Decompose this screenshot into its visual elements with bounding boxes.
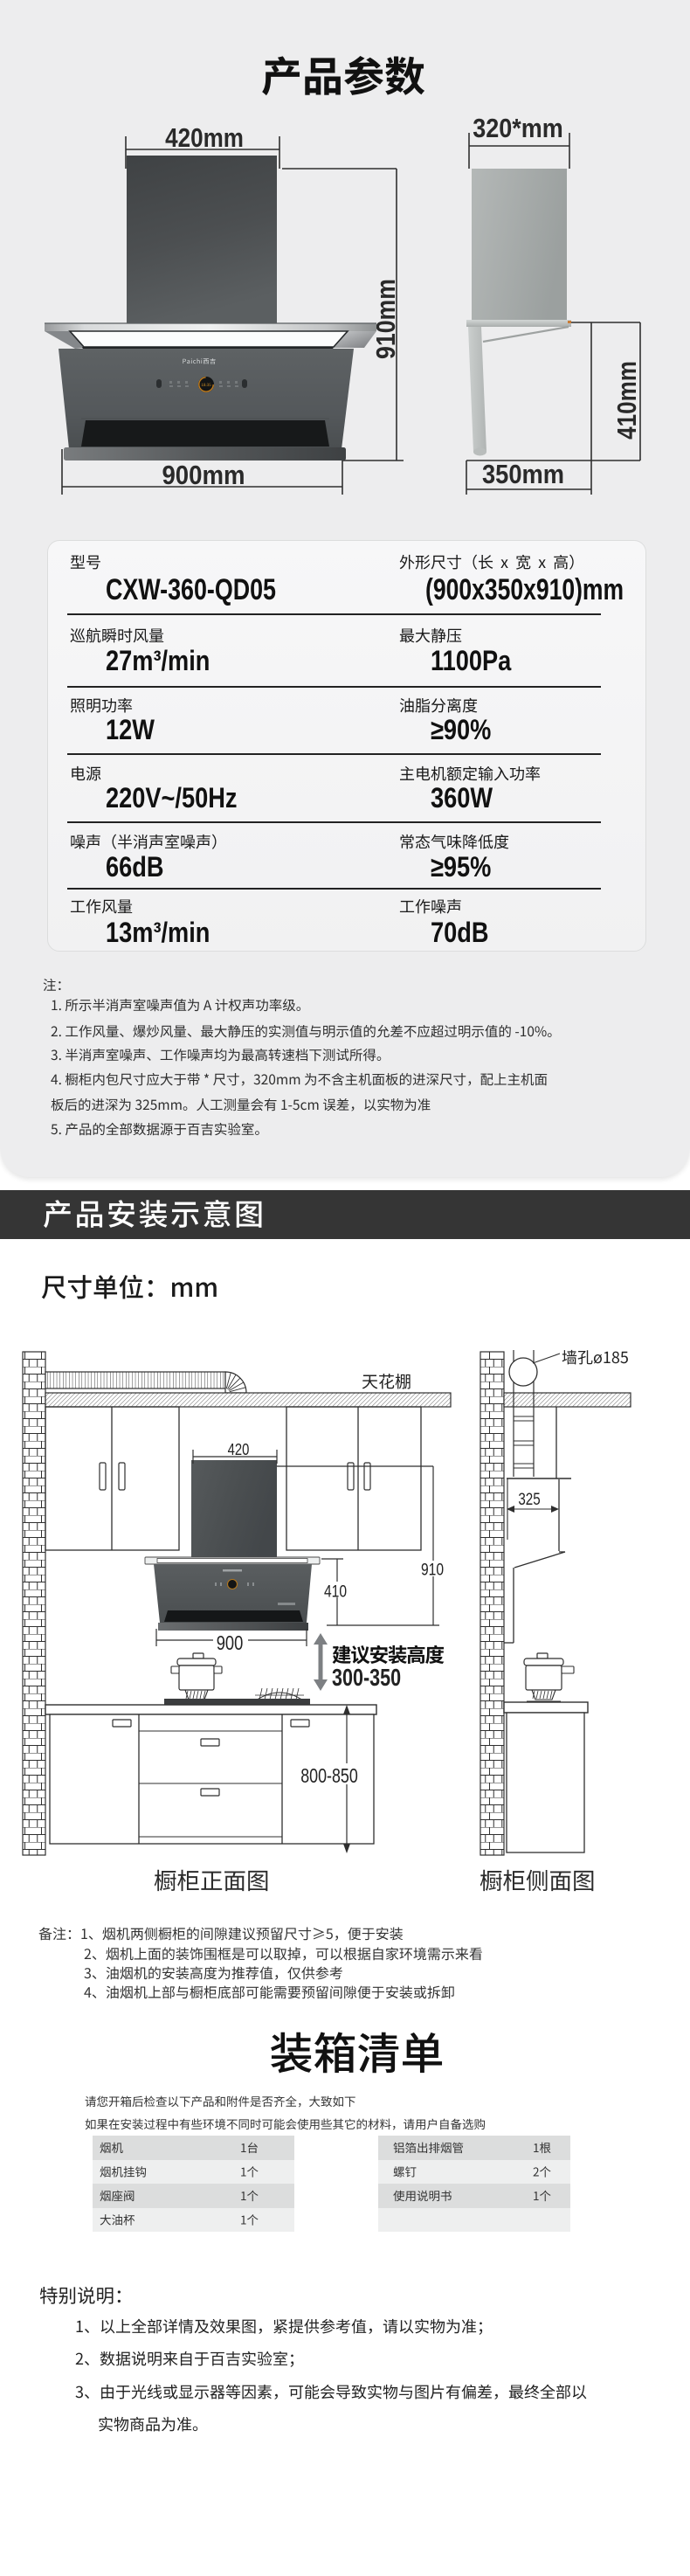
svg-text:900: 900 [217,1632,244,1655]
svg-text:800-850: 800-850 [300,1765,358,1788]
svg-text:300-350: 300-350 [332,1664,401,1691]
svg-text:910: 910 [421,1560,444,1579]
svg-text:420: 420 [228,1440,250,1458]
svg-text:410: 410 [324,1582,347,1601]
svg-text:325: 325 [518,1489,540,1508]
